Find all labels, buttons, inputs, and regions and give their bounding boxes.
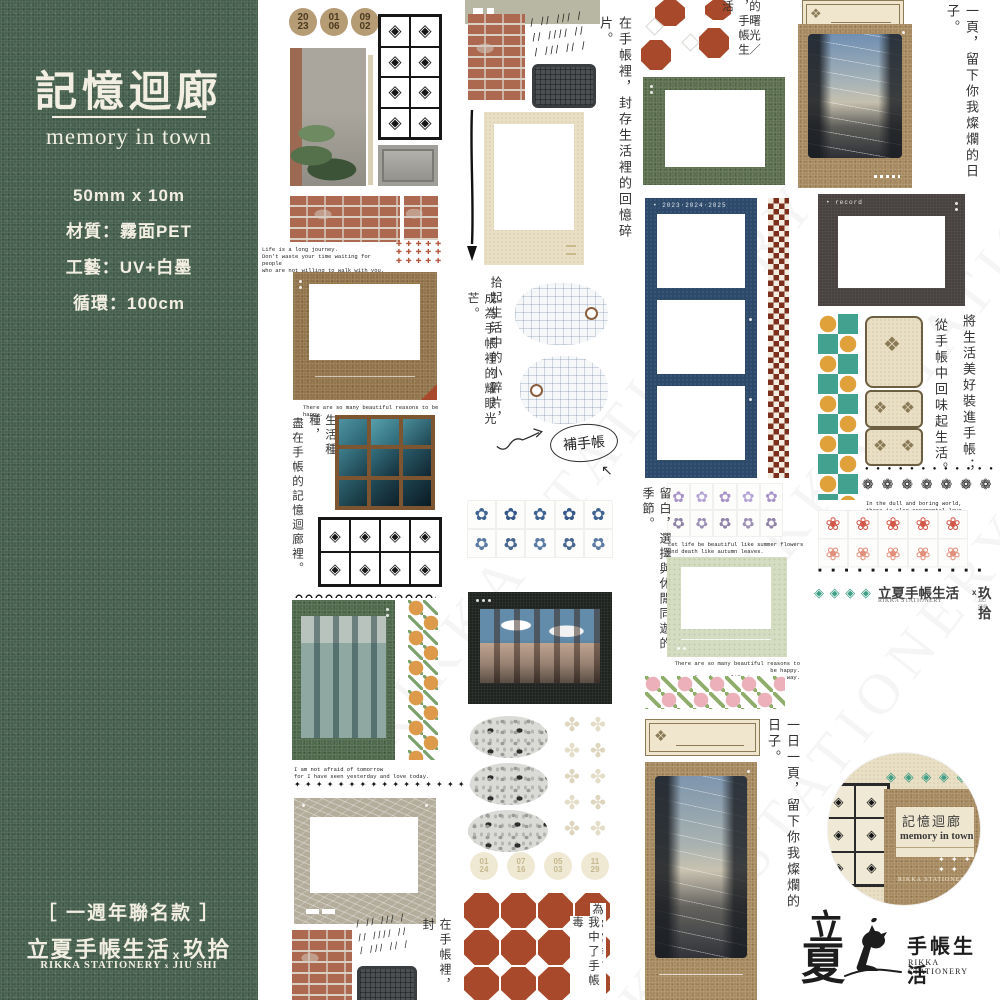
flower-tile: ✿ <box>467 529 496 558</box>
frame-dot <box>476 599 479 602</box>
flower-tile: ✿ <box>496 500 525 529</box>
sticker-brand: RIKKA STATIONERY <box>898 877 970 883</box>
collab-x-mark-en: x <box>165 962 170 970</box>
frame-dot <box>482 599 485 602</box>
flower-tile: ✿ <box>525 500 554 529</box>
grille-motif: ◈ <box>410 519 440 552</box>
brick-photo <box>404 196 438 240</box>
tape-sliver <box>368 55 373 185</box>
clover-shape: ✤ <box>585 790 611 816</box>
tape-roll-sticker: ◈◈ ◈◈ ◈◈ ◈ ◈ ◈ ◈ ◈ 記憶迴廊 memory in town R… <box>828 753 980 905</box>
window-pane <box>339 480 367 506</box>
handwriting-column: 盡在手帳的記憶迴廊裡。 <box>290 417 306 587</box>
filmstrip-window <box>657 386 745 460</box>
grid-paper-tag <box>515 283 608 345</box>
brick-photo <box>290 196 400 242</box>
clover-shape: ✤ <box>585 764 611 790</box>
product-subtitle: memory in town <box>0 124 258 150</box>
kraft-photo-frame <box>645 762 757 1000</box>
clover-shape: ✤ <box>585 738 611 764</box>
flower-tile: ✿ <box>555 500 584 529</box>
ornament-card: ❖ <box>865 316 923 388</box>
flower-tile: ✿ <box>713 510 736 537</box>
spiral-binding <box>294 589 436 598</box>
label-ticket: ❖ <box>645 719 760 756</box>
footer-brand-logo: 立 夏 手帳生活 RIKKA STATIONERY <box>795 900 995 1000</box>
handwriting-column: 我中了手帳毒 <box>570 916 602 1000</box>
window-pane <box>403 419 431 445</box>
window-pane <box>371 449 399 475</box>
date-sticker: 20 23 <box>289 8 317 36</box>
product-poster: 記憶迴廊 memory in town 50mm x 10m 材質：霧面PET … <box>0 0 1000 1000</box>
frame-window <box>310 817 418 893</box>
frame-dot <box>902 31 905 34</box>
manhole-plate <box>357 966 417 1000</box>
frame-window <box>838 216 945 288</box>
frame-mark <box>306 909 319 914</box>
small-arrow: ↖ <box>601 462 613 479</box>
street-photo <box>655 776 747 958</box>
collab-logo-row: ◈ ◈ ◈ ◈ 立夏手帳生活 x 玖拾 RIKKA STATIONERY JIU… <box>814 582 989 616</box>
brand-line-en: RIKKA STATIONERY x JIU SHI <box>0 960 258 971</box>
frame-mark <box>566 245 576 247</box>
frame-dot <box>747 770 750 773</box>
sticker-line <box>896 847 974 848</box>
flower-tile: ✿ <box>584 529 613 558</box>
torn-corner <box>421 384 437 400</box>
flower-tile: ✿ <box>496 529 525 558</box>
frame-line <box>315 376 415 377</box>
octagon-dot <box>501 893 536 928</box>
flower-tile: ✿ <box>690 483 713 510</box>
sticker-kraft-patch: 記憶迴廊 memory in town RIKKA STATIONERY ✦ ✦… <box>884 789 980 905</box>
grille-motif: ◈ <box>410 47 440 78</box>
frame-dot <box>386 614 389 617</box>
flower-tile: ✿ <box>737 483 760 510</box>
frame-mark <box>322 909 335 914</box>
squiggle-arrow <box>495 425 550 453</box>
brick-photo <box>468 14 525 100</box>
frame-dot <box>302 804 305 807</box>
window-pane <box>371 480 399 506</box>
building-photo <box>301 616 386 738</box>
card-ornament: ❖ <box>901 398 915 418</box>
octagon-dot <box>464 930 499 965</box>
red-tulip-tiles: ❀ ❀ ❀ ❀ ❀ ❀ ❀ ❀ ❀ ❀ <box>818 510 968 567</box>
flower-tile: ✿ <box>555 529 584 558</box>
sticker-subtitle: memory in town <box>900 831 974 842</box>
rain-doodle: ∕ ∕∕ ∕∕∕ ∕ ∕∕ ∕∕∕∕ ∕∕ ∕ ∕∕∕ ∕∕ ∕ <box>529 9 588 61</box>
frame-dot <box>955 202 958 205</box>
grille-motif: ◈ <box>380 47 410 78</box>
brand-name-en: RIKKA STATIONERY <box>40 960 161 971</box>
title-divider <box>52 116 206 118</box>
fiber-photo-frame <box>294 798 436 924</box>
grille-motif: ◈ <box>320 519 350 552</box>
grille-motif: ◈ <box>320 552 350 585</box>
frame-dot <box>299 286 302 289</box>
frame-dot <box>749 318 752 321</box>
logo-char-xia: 夏 <box>801 928 845 992</box>
frame-window <box>309 284 420 360</box>
ornament-row: ◈ ◈ ◈ ◈ <box>814 585 872 601</box>
grille-motif: ◈ <box>380 16 410 47</box>
info-panel: 記憶迴廊 memory in town 50mm x 10m 材質：霧面PET … <box>0 0 258 1000</box>
logo-x: x <box>972 588 976 597</box>
tulip-tile: ❀ <box>878 510 908 539</box>
sticker-grille-patch: ◈◈ ◈◈ ◈◈ <box>828 783 890 887</box>
date-sticker-faint: 05 03 <box>544 852 572 880</box>
grid-paper-tag <box>520 356 608 424</box>
clover-shape: ✤ <box>559 738 585 764</box>
logo-name-en: RIKKA STATIONERY <box>908 958 995 976</box>
charcoal-photo-frame: • record <box>818 194 965 306</box>
filmstrip-frame: • 2023·2024·2025 <box>645 198 757 478</box>
spec-process: 工藝：UV+白墨 <box>0 250 258 286</box>
tulip-tile: ❀ <box>938 539 968 568</box>
grille-motif: ◈ <box>828 785 855 818</box>
sticker-title: 記憶迴廊 <box>902 811 962 830</box>
tape-collage: RIKKA STATIONERY RIKKA STATIONERY RIKKA … <box>258 0 1000 1000</box>
sticker-sparkles: ✦ ✦ ✦ ✦ ✦ <box>938 855 973 876</box>
handwriting-column: 一日一頁，留下你我燦爛的日子。 <box>763 718 801 924</box>
date-sticker-faint: 01 24 <box>470 852 498 880</box>
checker-tape <box>768 198 789 478</box>
typed-quote: Life is a long journey. Don't waste your… <box>262 246 392 275</box>
grille-motif: ◈ <box>410 552 440 585</box>
terrazzo-oval <box>470 763 548 805</box>
brand-name-cn: 立夏手帳生活 <box>27 937 171 962</box>
product-specs: 50mm x 10m 材質：霧面PET 工藝：UV+白墨 循環：100cm <box>0 178 258 322</box>
octagon-dot <box>538 930 573 965</box>
record-label: • record <box>826 199 863 206</box>
ticket-line <box>676 745 744 746</box>
frame-window <box>494 124 574 230</box>
diamond-dotted-row: ✦ ✦ ✦ ✦ ✦ ✦ ✦ ✦ ✦ ✦ ✦ ✦ ✦ ✦ ✦ ✦ ✦ <box>294 780 477 789</box>
frame-marks <box>874 175 900 178</box>
tulip-tile: ❀ <box>908 539 938 568</box>
lace-medallion-row: ❁ ❁ ❁ ❁ ❁ ❁ ❁ <box>862 476 993 493</box>
flower-tile: ✿ <box>584 500 613 529</box>
cross-pattern: ✚ ✚ ✚ ✚ ✚ ✚ ✚ ✚ ✚ ✚ ✚ ✚ ✚ ✚ ✚ <box>396 241 442 266</box>
date-sticker-faint: 11 29 <box>581 852 609 880</box>
grille-motif: ◈ <box>380 77 410 108</box>
stone-plaque-photo <box>378 145 438 186</box>
tag-eyelet <box>585 307 598 320</box>
flower-tile: ✿ <box>713 483 736 510</box>
dotted-row: ● ● ● ● ● ● ● ● ● ● ● ● ● <box>865 466 1000 472</box>
green-photo-frame <box>292 600 395 760</box>
octagon-dot <box>464 967 499 1000</box>
octagon-dot <box>538 893 573 928</box>
brick-photo <box>292 930 352 1000</box>
ticket-line <box>831 22 891 23</box>
frame-mark <box>566 253 576 255</box>
frame-window <box>665 90 765 167</box>
street-photo <box>808 34 902 158</box>
typed-quote: I am not afraid of tomorrow for I have s… <box>294 766 444 780</box>
clover-shape: ✤ <box>559 816 585 842</box>
tulip-tile: ❀ <box>848 510 878 539</box>
frame-dot <box>677 647 680 650</box>
tulip-tile: ❀ <box>908 510 938 539</box>
filmstrip-window <box>657 300 745 374</box>
tulip-tile: ❀ <box>848 539 878 568</box>
flower-tile: ✿ <box>760 510 783 537</box>
octagon-dot <box>538 967 573 1000</box>
cream-clover-shapes: ✤ ✤ ✤ ✤ ✤ ✤ ✤ ✤ ✤ ✤ <box>559 712 611 842</box>
grille-motif: ◈ <box>380 552 410 585</box>
handwriting-column: 一頁，留下你我燦爛的日子。 <box>942 4 980 194</box>
pink-green-tile-tape <box>645 676 785 709</box>
grille-motif: ◈ <box>828 852 855 885</box>
tulip-tile: ❀ <box>818 539 848 568</box>
iron-grille-pattern: ◈◈ ◈◈ ◈◈ ◈◈ <box>378 14 442 140</box>
clover-tile-tape <box>408 600 438 760</box>
card-ornament: ❖ <box>873 398 887 418</box>
tulip-tile: ❀ <box>938 510 968 539</box>
window-pane <box>371 419 399 445</box>
grille-motif: ◈ <box>410 77 440 108</box>
grille-motif: ◈ <box>380 108 410 139</box>
grille-motif: ◈ <box>410 108 440 139</box>
grille-motif: ◈ <box>380 519 410 552</box>
date-sticker: 01 06 <box>320 8 348 36</box>
tulip-tile: ❀ <box>878 539 908 568</box>
octagon-dot <box>501 967 536 1000</box>
handwriting-column: 從手帳中回味起生活。 <box>930 318 949 526</box>
clover-shape: ✤ <box>559 712 585 738</box>
cream-photo-frame <box>484 112 584 265</box>
grille-motif: ◈ <box>350 552 380 585</box>
octagon-dot <box>501 930 536 965</box>
grille-motif: ◈ <box>410 16 440 47</box>
purple-flower-tiles: ✿ ✿ ✿ ✿ ✿ ✿ ✿ ✿ ✿ ✿ <box>667 483 783 537</box>
frame-dot <box>650 91 653 94</box>
terrazzo-oval <box>470 716 548 758</box>
flower-tile: ✿ <box>690 510 713 537</box>
spec-loop: 循環：100cm <box>0 286 258 322</box>
sage-photo-frame <box>667 557 787 657</box>
octagon-dot <box>464 893 499 928</box>
card-ornament: ❖ <box>901 436 915 456</box>
museum-photo <box>480 609 600 683</box>
frame-dot <box>386 608 389 611</box>
fern-wall-photo <box>290 48 366 186</box>
edition-label: ［ 一週年聯名款 ］ <box>0 898 258 925</box>
grille-motif: ◈ <box>828 818 855 851</box>
frame-dot <box>683 647 686 650</box>
tulip-tile: ❀ <box>818 510 848 539</box>
typed-quote: Let life be beautiful like summer flower… <box>668 541 808 555</box>
green-photo-frame <box>643 77 785 185</box>
cork-photo-frame <box>293 272 437 400</box>
flower-tile: ✿ <box>760 483 783 510</box>
frame-dot <box>650 85 653 88</box>
handwriting-column: ，手帳生活 <box>720 0 752 72</box>
handwriting-column: 在手帳裡，封 <box>420 918 454 1000</box>
window-pane <box>339 449 367 475</box>
clover-shape: ✤ <box>559 764 585 790</box>
frame-dot <box>425 804 428 807</box>
ticket-ornament: ❖ <box>810 6 822 22</box>
collab-name-cn: 玖拾 <box>183 937 231 962</box>
card-ornament: ❖ <box>873 436 887 456</box>
sticker-ornament-row: ◈ ◈ ◈ ◈ ◈ <box>886 769 968 785</box>
card-ornament: ❖ <box>883 332 901 357</box>
clover-shape: ✤ <box>585 712 611 738</box>
tag-eyelet <box>530 384 543 397</box>
frame-line <box>659 974 743 975</box>
logo-brand-en: RIKKA STATIONERY <box>878 598 942 604</box>
black-photo-frame <box>468 592 612 704</box>
flower-tile: ✿ <box>737 510 760 537</box>
date-sticker-faint: 07 16 <box>507 852 535 880</box>
frame-dot <box>488 599 491 602</box>
moroccan-tile-tape <box>818 314 858 500</box>
down-arrow-doodle <box>466 110 478 262</box>
kraft-photo-frame <box>798 24 912 188</box>
flower-tile: ✿ <box>467 500 496 529</box>
diamond-outline <box>681 33 699 51</box>
manhole-plate <box>532 64 596 108</box>
octagon-dot <box>641 40 671 70</box>
spec-material: 材質：霧面PET <box>0 214 258 250</box>
handwriting-column: 在手帳裡，封存生活裡的回憶碎片。 <box>595 16 633 266</box>
sticker-label: 記憶迴廊 memory in town <box>896 807 974 857</box>
rain-doodle: ∕ ∕∕ ∕∕∕ ∕ ∕∕ ∕∕∕∕ ∕∕ ∕ ∕∕∕ ∕∕ ∕ <box>355 912 410 959</box>
collab-name-en: JIU SHI <box>173 960 218 971</box>
terrazzo-oval <box>468 810 548 852</box>
grille-motif: ◈ <box>350 519 380 552</box>
spec-size: 50mm x 10m <box>0 178 258 214</box>
filmstrip-window <box>657 214 745 288</box>
frame-dot <box>749 398 752 401</box>
window-pane <box>339 419 367 445</box>
frame-dot <box>299 280 302 283</box>
filmstrip-years-label: • 2023·2024·2025 <box>653 202 727 209</box>
logo-collab-en: JIU SHI <box>978 598 989 610</box>
ornament-card: ❖ ❖ <box>865 428 923 466</box>
frame-window <box>681 567 771 629</box>
handwriting-column: 成為手帳裡的耀眼光芒。 <box>465 292 499 454</box>
iron-grille-pattern: ◈◈ ◈◈ ◈◈ ◈◈ <box>318 517 442 587</box>
frame-line <box>681 639 771 640</box>
window-pane <box>403 480 431 506</box>
ticket-ornament: ❖ <box>654 727 667 745</box>
window-photo <box>335 415 435 510</box>
frame-dot <box>955 208 958 211</box>
flower-tile: ✿ <box>525 529 554 558</box>
clover-shape: ✤ <box>585 816 611 842</box>
product-title: 記憶迴廊 <box>0 58 258 119</box>
blue-flower-tiles: ✿ ✿ ✿ ✿ ✿ ✿ ✿ ✿ ✿ ✿ <box>467 500 613 558</box>
window-pane <box>403 449 431 475</box>
ornament-card: ❖ ❖ <box>865 390 923 428</box>
date-sticker: 09 02 <box>351 8 379 36</box>
square-dotted-row: ■ ■ ■ ■ ■ ■ ■ ■ ■ ■ ■ ■ ■ <box>818 568 985 574</box>
clover-shape: ✤ <box>559 790 585 816</box>
